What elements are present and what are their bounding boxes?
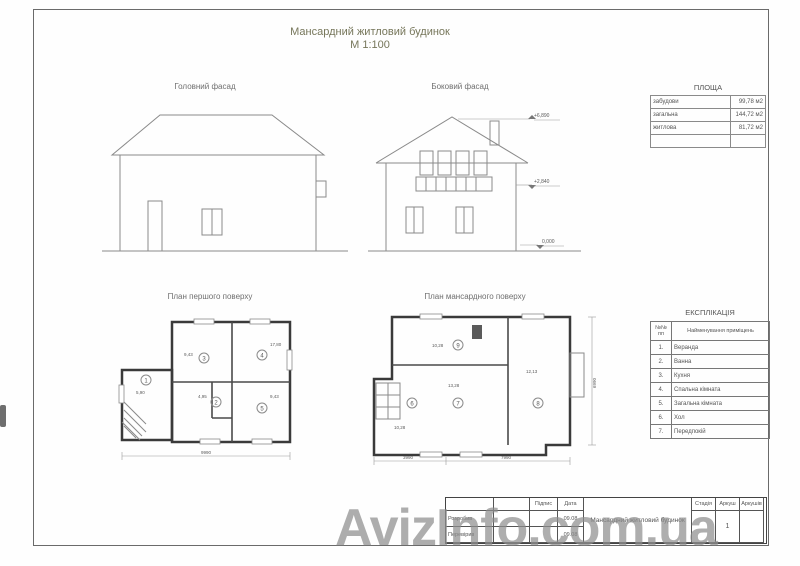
svg-text:12,13: 12,13 [526, 369, 538, 374]
mansard-plan-drawing: 9 10,28 7 13,28 8 12,13 6 10,28 3990 799… [360, 303, 600, 465]
chimney-shaft [472, 325, 482, 339]
explication-block: ЕКСПЛІКАЦІЯ №№ пп Найменування приміщень… [650, 308, 770, 439]
svg-text:5: 5 [260, 407, 264, 413]
first-floor-plan-label: План першого поверху [120, 292, 300, 301]
col-num-header: №№ пп [651, 322, 672, 341]
interior-partitions [392, 317, 508, 445]
svg-text:3: 3 [202, 357, 206, 363]
table-row: 6. Хол [651, 411, 770, 425]
svg-text:6990: 6990 [592, 377, 597, 388]
table-row: 5. Загальна кімната [651, 397, 770, 411]
side-facade-drawing: +6,890 +2,840 0,000 [368, 105, 583, 255]
dimension-right: 6990 [588, 317, 597, 445]
room-6: 6 10,28 [394, 398, 417, 430]
table-row: 7. Передпокій [651, 425, 770, 439]
elevation-mid: +2,840 [534, 179, 550, 185]
svg-text:17,80: 17,80 [270, 342, 282, 347]
gable-roof [376, 117, 528, 163]
svg-text:9: 9 [456, 344, 460, 350]
svg-text:1: 1 [144, 379, 148, 385]
svg-text:4,95: 4,95 [198, 394, 207, 399]
table-row: 2. Ванна [651, 355, 770, 369]
elevation-marks: +6,890 +2,840 0,000 [458, 113, 564, 249]
area-label: забудови [651, 96, 731, 109]
entrance-door [148, 201, 162, 251]
drawing-scale: М 1:100 [230, 39, 510, 52]
svg-text:9990: 9990 [201, 450, 212, 455]
svg-text:6: 6 [410, 402, 414, 408]
facade-window [202, 209, 222, 235]
explication-title: ЕКСПЛІКАЦІЯ [650, 308, 770, 317]
watermark-text: AvizInfo.com.ua [335, 498, 800, 558]
area-table-title: ПЛОЩА [650, 83, 766, 92]
area-value: 81,72 м2 [731, 122, 766, 135]
porch-hatch [122, 402, 146, 440]
svg-text:9,43: 9,43 [184, 352, 193, 357]
interior-partitions [172, 322, 290, 442]
balcony-railing [416, 177, 492, 191]
first-floor-plan-drawing: 1 5,90 3 9,43 4 17,80 2 4,95 5 9,43 9990 [112, 310, 302, 462]
table-row: житлова 81,72 м2 [651, 122, 766, 135]
col-name-header: Найменування приміщень [672, 322, 770, 341]
drawing-title: Мансардний житловий будинок М 1:100 [230, 26, 510, 52]
svg-text:5,90: 5,90 [136, 390, 145, 395]
svg-text:4: 4 [260, 354, 264, 360]
svg-text:9,43: 9,43 [270, 394, 279, 399]
explication-table: №№ пп Найменування приміщень 1. Веранда … [650, 321, 770, 439]
area-value: 144,72 м2 [731, 109, 766, 122]
scan-edge-artifact [0, 405, 6, 427]
drawing-title-line1: Мансардний житловий будинок [230, 26, 510, 39]
table-row: 3. Кухня [651, 369, 770, 383]
dimension-bottom: 9990 [122, 450, 290, 460]
main-facade-drawing [100, 105, 350, 255]
svg-text:8: 8 [536, 402, 540, 408]
area-table-block: ПЛОЩА забудови 99,78 м2 загальна 144,72 … [650, 83, 766, 148]
stair-grid [376, 383, 400, 419]
room-5: 5 9,43 [257, 394, 279, 413]
table-row: 4. Спальна кімната [651, 383, 770, 397]
room-8: 8 12,13 [526, 369, 543, 408]
svg-text:7990: 7990 [501, 455, 512, 460]
svg-text:10,28: 10,28 [432, 343, 444, 348]
area-label: житлова [651, 122, 731, 135]
ground-floor-windows [406, 207, 473, 233]
scanned-drawing-sheet: Мансардний житловий будинок М 1:100 Голо… [0, 0, 800, 566]
room-9: 9 10,28 [432, 340, 463, 350]
table-row: забудови 99,78 м2 [651, 96, 766, 109]
hip-roof [112, 115, 324, 155]
table-row: 1. Веранда [651, 341, 770, 355]
table-row: загальна 144,72 м2 [651, 109, 766, 122]
svg-text:10,28: 10,28 [394, 425, 406, 430]
svg-text:13,28: 13,28 [448, 383, 460, 388]
room-4: 4 17,80 [257, 342, 282, 360]
main-facade-label: Головний фасад [120, 82, 290, 91]
svg-text:7: 7 [456, 402, 460, 408]
facade-wall [120, 155, 316, 251]
elevation-zero: 0,000 [542, 239, 555, 245]
mansard-plan-label: План мансардного поверху [375, 292, 575, 301]
area-label: загальна [651, 109, 731, 122]
room-7: 7 13,28 [448, 383, 463, 408]
table-row [651, 135, 766, 148]
room-2: 2 4,95 [198, 394, 221, 407]
room-3: 3 9,43 [184, 352, 209, 363]
table-header-row: №№ пп Найменування приміщень [651, 322, 770, 341]
area-table: забудови 99,78 м2 загальна 144,72 м2 жит… [650, 95, 766, 148]
svg-text:2: 2 [214, 401, 218, 407]
svg-text:3990: 3990 [403, 455, 414, 460]
room-1: 1 5,90 [136, 375, 151, 395]
elevation-top: +6,890 [534, 113, 550, 119]
balcony [570, 353, 584, 397]
side-facade-label: Боковий фасад [380, 82, 540, 91]
area-value: 99,78 м2 [731, 96, 766, 109]
side-vent [316, 181, 326, 197]
